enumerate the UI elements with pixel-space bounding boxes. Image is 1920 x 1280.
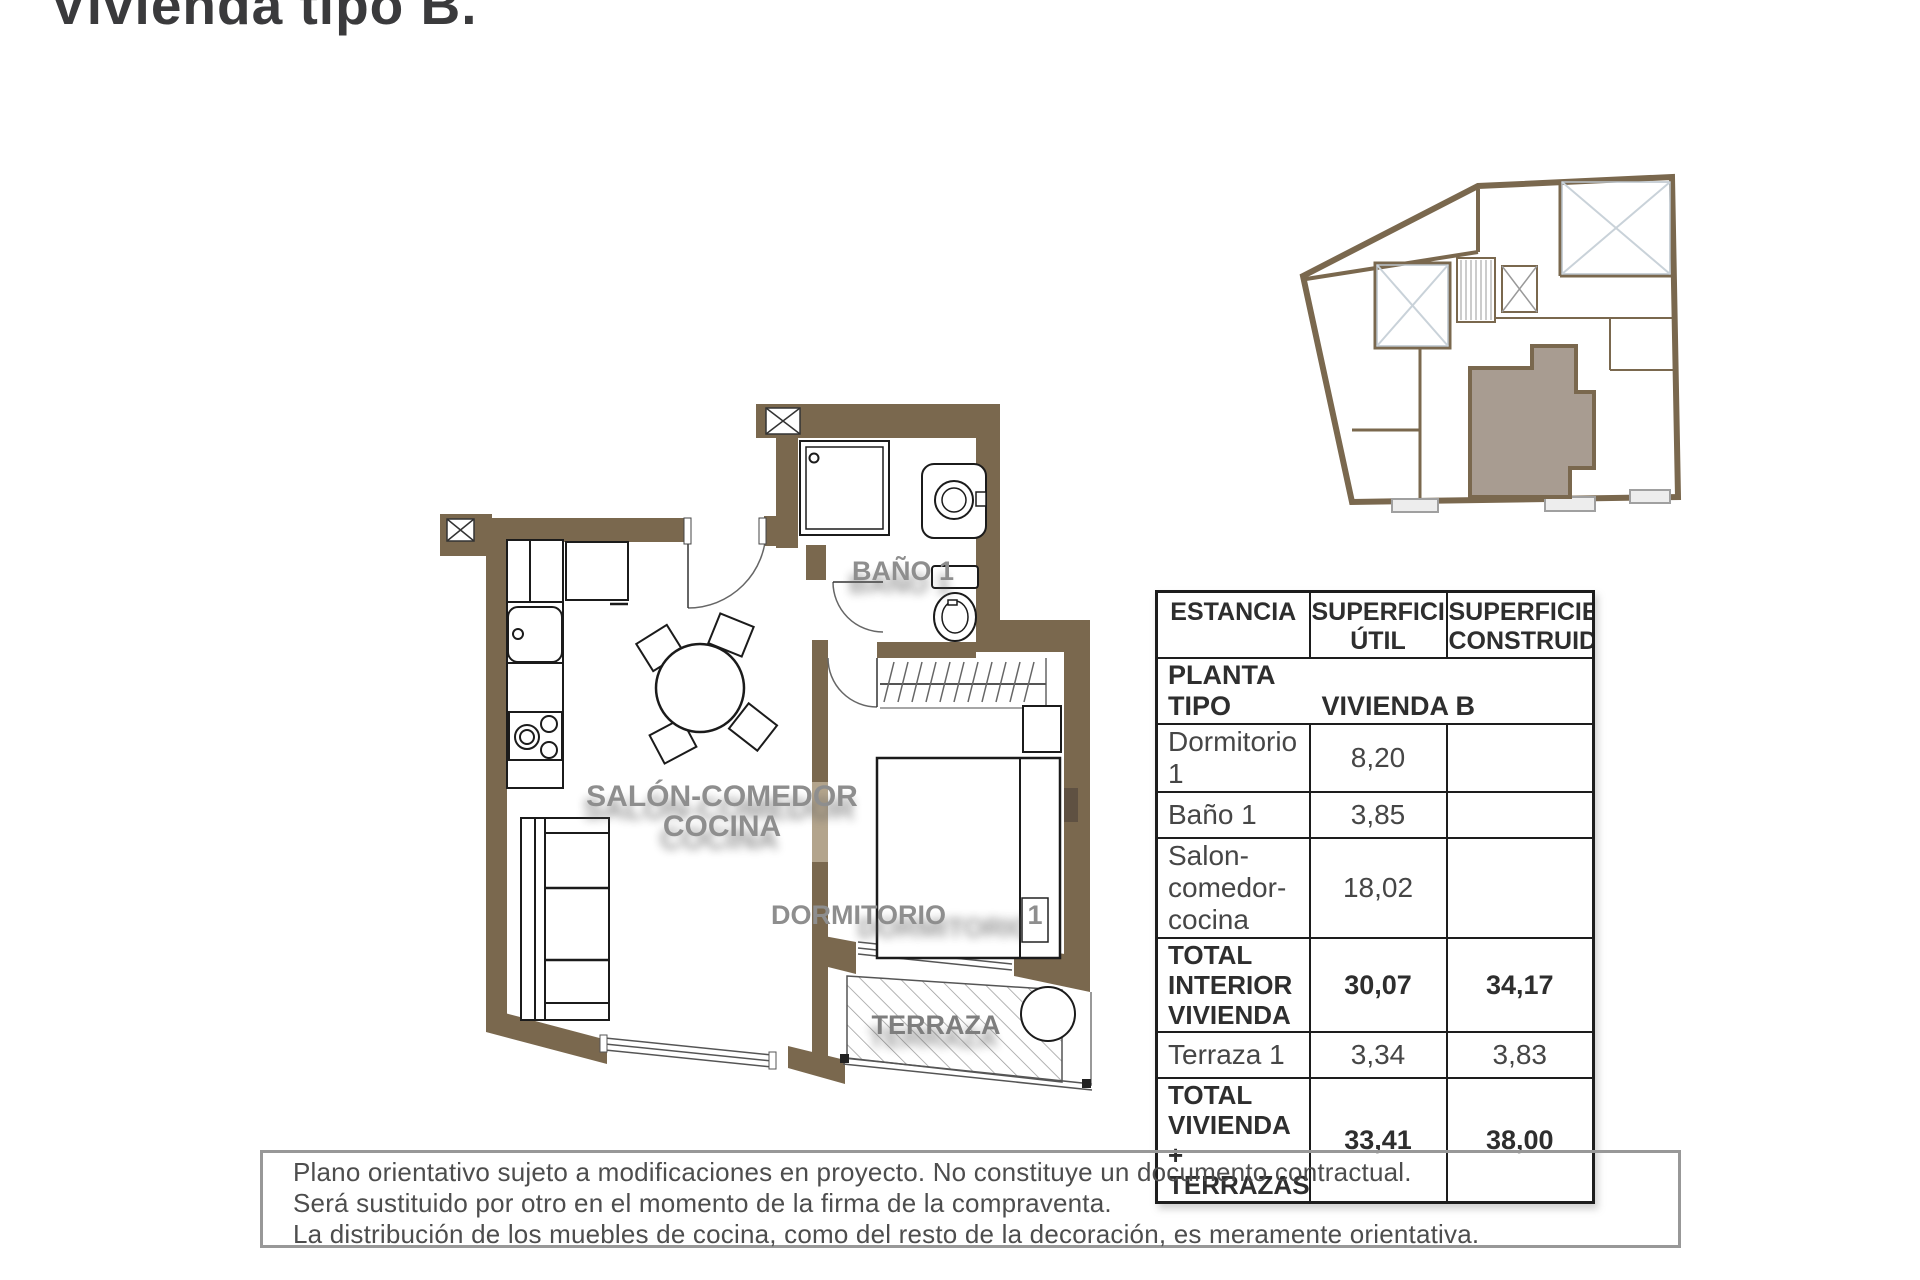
salon-label-line2: COCINA [663,810,781,843]
nightstand [1023,706,1061,752]
header-superficie-construida-l1: SUPERFICIE [1449,598,1592,627]
terraza-label: TERRAZA [872,1010,1001,1040]
row-salon-util: 18,02 [1310,838,1447,938]
surface-areas-table: ESTANCIA SUPERFICIE ÚTIL SUPERFICIE CONS… [1155,590,1595,1204]
disclaimer-line: La distribución de los muebles de cocina… [293,1219,1678,1250]
header-superficie-construida: SUPERFICIE CONSTRUIDA [1447,592,1594,659]
header-superficie-util-l2: ÚTIL [1312,627,1445,656]
total-interior-construida: 34,17 [1447,938,1594,1032]
row-salon-name: Salon-comedor-cocina [1157,838,1310,938]
vent-shaft-icon [766,408,800,434]
vivienda-b-label: VIVIENDA B [1322,691,1476,721]
row-dormitorio-util: 8,20 [1310,724,1447,792]
row-terraza-util: 3,34 [1310,1032,1447,1078]
row-terraza-construida: 3,83 [1447,1032,1594,1078]
shower [800,441,889,535]
planta-tipo-label: PLANTA TIPO [1168,660,1314,722]
washbasin [922,464,986,538]
planta-tipo-row: PLANTA TIPO VIVIENDA B [1157,658,1594,724]
disclaimer-line: Será sustituido por otro en el momento d… [293,1188,1678,1219]
sofa [521,818,609,1020]
building-overview-plan [1295,135,1705,515]
table-row: Salon-comedor-cocina 18,02 [1157,838,1594,938]
total-interior-row: TOTAL INTERIOR VIVIENDA 30,07 34,17 [1157,938,1594,1032]
header-superficie-util: SUPERFICIE ÚTIL [1310,592,1447,659]
row-salon-construida [1447,838,1594,938]
apartment-floor-plan: SALÓN-COMEDOR COCINA BAÑO 1 DORMITORIO T… [430,395,1110,1110]
row-bano-util: 3,85 [1310,792,1447,838]
door-jambs [684,518,766,544]
row-terraza-name: Terraza 1 [1157,1032,1310,1078]
kitchen-stove [509,712,562,760]
page-title: Vivienda tipo B. [50,0,478,37]
kitchen-sink [508,607,562,662]
table-header-row: ESTANCIA SUPERFICIE ÚTIL SUPERFICIE CONS… [1157,592,1594,659]
dormitorio-label: DORMITORIO [771,900,946,930]
salon-label: SALÓN-COMEDOR [586,779,858,813]
pillar-icon [447,519,474,541]
table-row: Dormitorio 1 8,20 [1157,724,1594,792]
header-superficie-construida-l2: CONSTRUIDA [1449,627,1592,656]
header-estancia: ESTANCIA [1157,592,1310,659]
disclaimer-box: Plano orientativo sujeto a modificacione… [260,1150,1681,1248]
header-superficie-util-l1: SUPERFICIE [1312,598,1445,627]
disclaimer-line: Plano orientativo sujeto a modificacione… [293,1157,1678,1188]
dormitorio-number: 1 [1027,900,1042,930]
row-dormitorio-name: Dormitorio 1 [1157,724,1310,792]
bano-label: BAÑO 1 [852,555,954,586]
table-row: Baño 1 3,85 [1157,792,1594,838]
row-bano-construida [1447,792,1594,838]
dining-set [636,613,777,763]
window-salon [600,1035,776,1069]
row-dormitorio-construida [1447,724,1594,792]
wardrobe [880,658,1046,708]
planta-tipo-cell: PLANTA TIPO VIVIENDA B [1157,658,1594,724]
total-interior-util: 30,07 [1310,938,1447,1032]
table-row: Terraza 1 3,34 3,83 [1157,1032,1594,1078]
total-interior-name: TOTAL INTERIOR VIVIENDA [1157,938,1310,1032]
row-bano-name: Baño 1 [1157,792,1310,838]
